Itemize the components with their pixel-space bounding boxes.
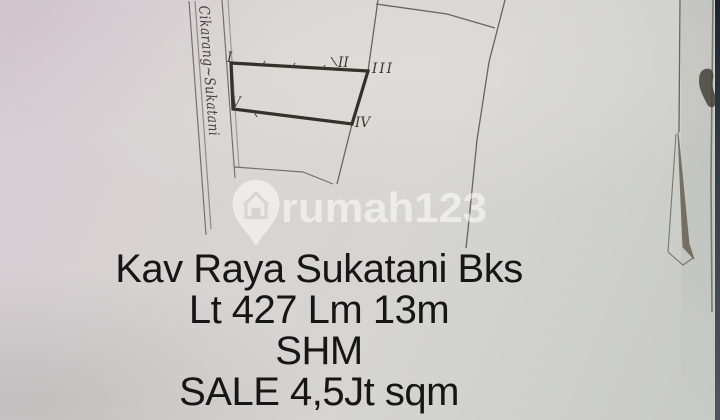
listing-photo: Cikarang~Sukatani I II III IV V <box>0 0 720 420</box>
road-label: Cikarang~Sukatani <box>195 5 221 137</box>
corner-label-3: III <box>371 61 394 77</box>
watermark: rumah123 <box>233 180 488 246</box>
map-pin-house-icon <box>233 180 280 246</box>
paper-crease-shadow <box>668 69 716 265</box>
caption-size: Lt 427 Lm 13m <box>0 290 638 331</box>
listing-caption: Kav Raya Sukatani Bks Lt 427 Lm 13m SHM … <box>0 249 638 413</box>
parcel-outline <box>231 63 368 124</box>
corner-label-4: IV <box>354 115 371 131</box>
photo-right-edge <box>715 0 720 420</box>
watermark-brand: rumah123 <box>281 184 487 231</box>
caption-cert: SHM <box>0 331 638 372</box>
corner-label-1: I <box>226 50 233 66</box>
caption-price: SALE 4,5Jt sqm <box>0 372 638 413</box>
corner-label-2: II <box>337 55 349 71</box>
corner-label-5: V <box>231 95 242 111</box>
paper-clip-smudge <box>699 69 716 108</box>
caption-title: Kav Raya Sukatani Bks <box>0 249 638 290</box>
